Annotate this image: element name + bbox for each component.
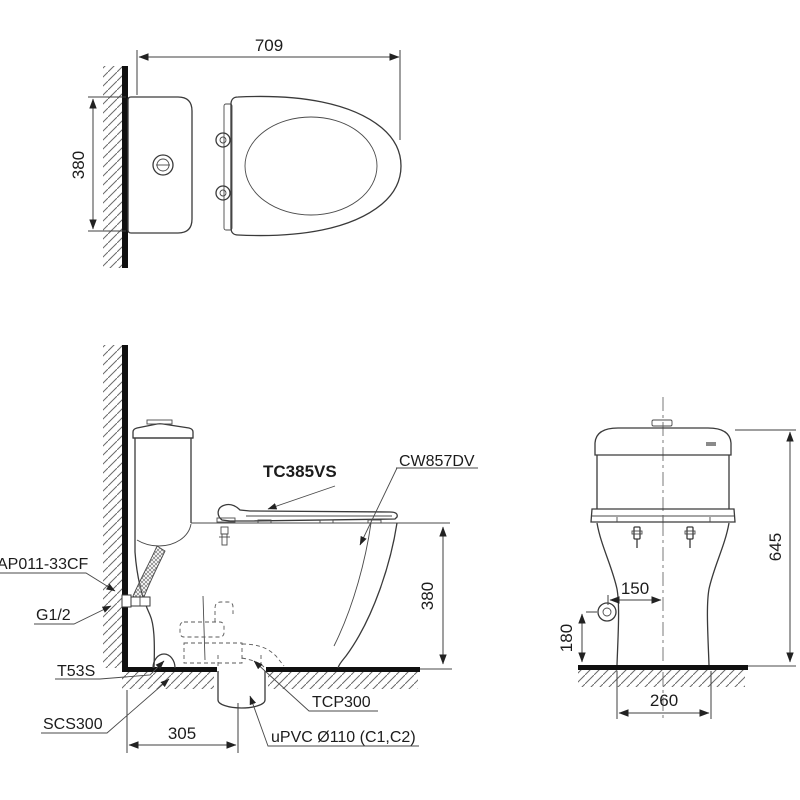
- inlet-hole-inner: [603, 608, 611, 616]
- bowl-model-label: CW857DV: [399, 453, 475, 470]
- bowl-leader: [360, 468, 397, 545]
- top-view: 709 380: [69, 36, 401, 268]
- front-view: 645 150 180 260: [557, 397, 796, 719]
- inlet-hole-outer: [598, 603, 616, 621]
- socket-label: TCP300: [312, 694, 371, 711]
- hinge-right: [216, 186, 230, 200]
- floor-line: [122, 667, 217, 672]
- bowl-interior: [137, 524, 191, 546]
- seat-profile: [218, 504, 397, 521]
- flush-valve-dashed: [180, 622, 224, 637]
- dim-base-width-text: 260: [650, 691, 678, 710]
- dim-depth-text: 380: [69, 151, 88, 179]
- flush-button-front: [652, 420, 672, 426]
- drain-pipe-bottom: [218, 700, 265, 708]
- toilet-installation-drawing: 709 380: [0, 0, 800, 800]
- seat-bolt-head: [221, 527, 228, 534]
- pedestal-left: [597, 523, 619, 665]
- overflow-pipe-dashed: [215, 602, 233, 622]
- dim-inlet-height-text: 180: [557, 624, 576, 652]
- valve-wall-flange: [122, 595, 131, 607]
- flange-label: SCS300: [43, 716, 103, 733]
- floor-hatch: [578, 670, 745, 687]
- seat-bolt-front: [632, 527, 642, 548]
- wall-line: [122, 345, 128, 670]
- floor-hatch: [122, 672, 214, 689]
- seat-lid-inner-oval: [245, 117, 377, 215]
- bolt-cap-label: T53S: [57, 663, 95, 680]
- pipe-label: uPVC Ø110 (C1,C2): [271, 729, 416, 746]
- floor-line: [266, 667, 420, 672]
- hinge-left-screw: [220, 137, 226, 143]
- hinge-left: [216, 133, 230, 147]
- tank-lid: [133, 424, 193, 438]
- pedestal-right: [707, 523, 729, 665]
- dim-height-text: 645: [766, 533, 785, 561]
- thread-label: G1/2: [36, 607, 71, 624]
- seat-bolt-body: [222, 534, 227, 545]
- hinge-right-screw: [220, 190, 226, 196]
- valve-leader: [0, 573, 115, 591]
- bowl-inner-curve: [334, 523, 371, 646]
- bowl-leg-line: [203, 596, 205, 660]
- dim-width-text: 709: [255, 36, 283, 55]
- floor-hatch: [268, 672, 418, 689]
- seat-model-label: TC385VS: [263, 462, 337, 481]
- wall-hatch: [103, 345, 122, 668]
- brand-logo: [706, 442, 716, 446]
- technical-drawing-page: 709 380: [0, 0, 800, 800]
- dim-rim-height-text: 380: [418, 582, 437, 610]
- dim-inlet-offset-text: 150: [621, 579, 649, 598]
- floor-line: [578, 665, 748, 670]
- seat-bolt-front: [685, 527, 695, 548]
- dim-outlet-offset-text: 305: [168, 724, 196, 743]
- wall-line: [122, 66, 128, 268]
- seat-leader: [268, 486, 335, 509]
- outlet-elbow-dashed: [242, 644, 284, 666]
- stop-valve-body: [131, 597, 150, 606]
- trapway-dashed: [184, 643, 242, 663]
- valve-model-label: AP011-33CF: [0, 556, 89, 573]
- side-view: 380 305 TC385VS CW857DV AP011-33CF G1/2 …: [0, 345, 478, 753]
- wall-hatch: [103, 66, 122, 268]
